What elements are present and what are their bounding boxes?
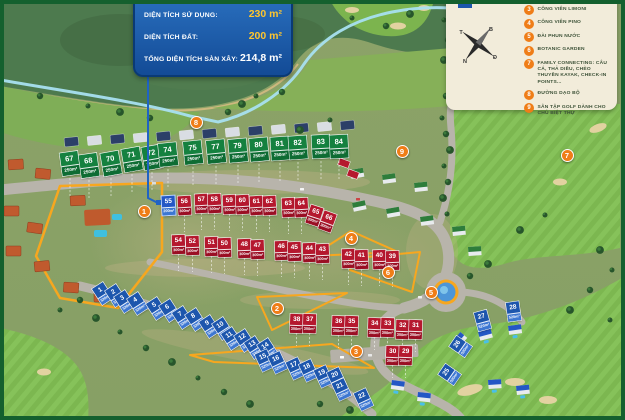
legend-item-label: ĐƯỜNG DẠO BỘ: [538, 90, 580, 98]
svg-text:N: N: [463, 59, 467, 65]
legend-item-4: 4CÔNG VIÊN PINO: [524, 19, 612, 29]
info-value: 214,8 m²: [240, 52, 282, 64]
map-marker-6[interactable]: 6: [382, 266, 395, 279]
map-marker-3[interactable]: 3: [350, 345, 363, 358]
legend-item-number: 4: [524, 19, 534, 29]
map-marker-9[interactable]: 9: [396, 145, 409, 158]
legend-item-number: 5: [524, 32, 534, 42]
sky-villas-label: SKY VILLAS: [476, 0, 511, 4]
map-marker-7[interactable]: 7: [561, 149, 574, 162]
svg-text:T: T: [459, 30, 463, 36]
legend-item-label: CÔNG VIÊN PINO: [538, 19, 582, 27]
info-row: DIỆN TÍCH SỬ DỤNG:230 m²: [144, 8, 282, 30]
legend-item-label: ĐÀI PHUN NƯỚC: [538, 32, 581, 40]
legend-item-5: 5ĐÀI PHUN NƯỚC: [524, 32, 612, 42]
svg-text:Đ: Đ: [493, 55, 497, 61]
info-value: 230 m²: [249, 8, 282, 20]
legend-item-label: BOTANIC GARDEN: [538, 46, 585, 54]
legend-item-label: FAMILY CONNECTING: CÂU CÁ, THẢ DIỀU, CHÈ…: [538, 59, 613, 86]
masterplan-map: 67250m²68250m²70250m²71250m²72250m²74250…: [0, 0, 625, 420]
legend-item-3: 3CÔNG VIÊN LIMONI: [524, 5, 612, 15]
map-marker-5[interactable]: 5: [425, 286, 438, 299]
legend-item-label: SÂN TẬP GOLF DÀNH CHO CHỦ BIỆT THỰ: [538, 103, 613, 117]
legend-item-label: CÔNG VIÊN LIMONI: [538, 5, 587, 13]
legend-item-number: 8: [524, 90, 534, 100]
svg-text:B: B: [489, 27, 493, 33]
legend-item-number: 7: [524, 59, 534, 69]
map-marker-1[interactable]: 1: [138, 205, 151, 218]
map-marker-4[interactable]: 4: [345, 232, 358, 245]
info-label: DIỆN TÍCH ĐẤT:: [144, 34, 198, 41]
info-label: DIỆN TÍCH SỬ DỤNG:: [144, 12, 218, 19]
compass-icon: B Đ N T: [456, 22, 500, 66]
legend-cut-item-icon: [522, 0, 535, 4]
legend-item-9: 9SÂN TẬP GOLF DÀNH CHO CHỦ BIỆT THỰ: [524, 103, 612, 117]
info-row: DIỆN TÍCH ĐẤT:200 m²: [144, 30, 282, 52]
legend-panel: SKY VILLAS 3CÔNG VIÊN LIMONI4CÔNG VIÊN P…: [446, 0, 617, 110]
legend-item-6: 6BOTANIC GARDEN: [524, 46, 612, 56]
info-row: TỔNG DIỆN TÍCH SÀN XÂY:214,8 m²: [144, 52, 282, 74]
legend-item-7: 7FAMILY CONNECTING: CÂU CÁ, THẢ DIỀU, CH…: [524, 59, 612, 86]
legend-item-8: 8ĐƯỜNG DẠO BỘ: [524, 90, 612, 100]
legend-item-number: 9: [524, 103, 534, 113]
legend-item-number: 3: [524, 5, 534, 15]
legend-item-number: 6: [524, 46, 534, 56]
map-marker-8[interactable]: 8: [190, 116, 203, 129]
info-value: 200 m²: [249, 30, 282, 42]
legend-items: 3CÔNG VIÊN LIMONI4CÔNG VIÊN PINO5ĐÀI PHU…: [524, 5, 612, 121]
info-label: TỔNG DIỆN TÍCH SÀN XÂY:: [144, 56, 238, 63]
area-info-panel: DIỆN TÍCH SỬ DỤNG:230 m²DIỆN TÍCH ĐẤT:20…: [133, 0, 293, 77]
sky-villas-swatch: [458, 0, 472, 8]
map-marker-2[interactable]: 2: [271, 302, 284, 315]
